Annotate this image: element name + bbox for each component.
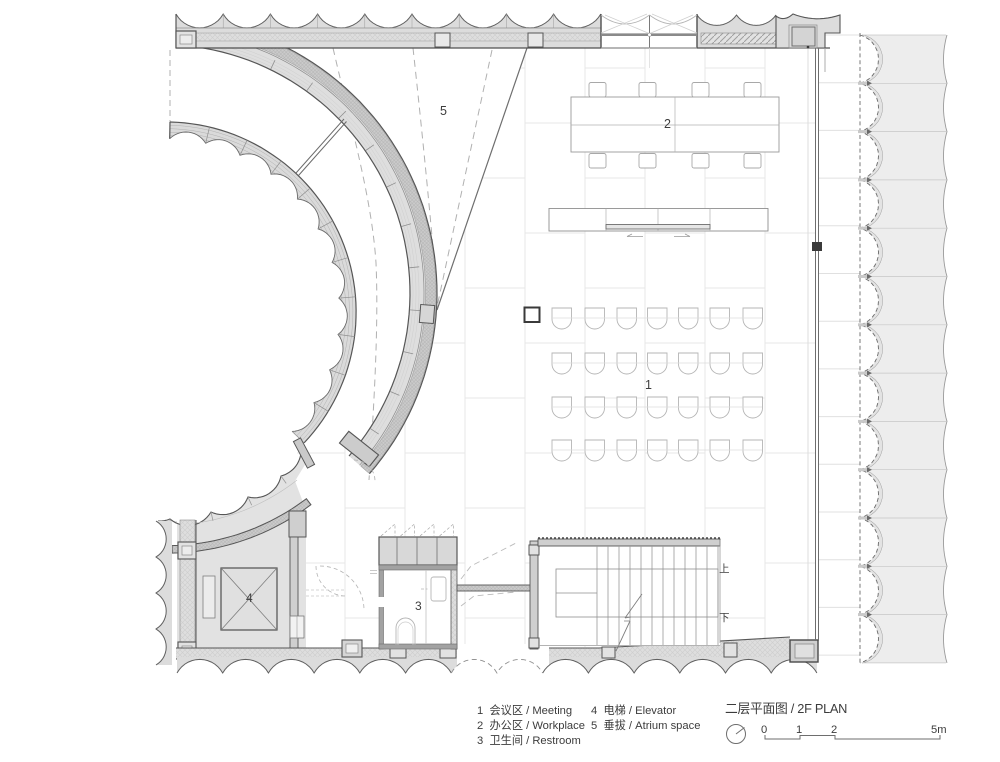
- svg-text:0: 0: [761, 724, 767, 736]
- svg-text:1 会议区 / Meeting: 1 会议区 / Meeting: [477, 704, 572, 717]
- svg-text:3: 3: [415, 599, 422, 613]
- svg-text:3 卫生间 / Restroom: 3 卫生间 / Restroom: [477, 733, 581, 747]
- svg-text:2 办公区 / Workplace: 2 办公区 / Workplace: [477, 719, 585, 732]
- svg-text:5: 5: [440, 104, 447, 118]
- svg-text:1: 1: [645, 378, 652, 392]
- svg-text:5 垂拔 / Atrium space: 5 垂拔 / Atrium space: [591, 718, 700, 732]
- svg-text:二层平面图 / 2F PLAN: 二层平面图 / 2F PLAN: [725, 701, 847, 716]
- svg-text:5m: 5m: [931, 724, 947, 736]
- svg-text:下: 下: [719, 612, 730, 624]
- svg-text:2: 2: [831, 724, 837, 736]
- svg-text:2: 2: [664, 117, 671, 131]
- svg-text:4 电梯 / Elevator: 4 电梯 / Elevator: [591, 704, 676, 717]
- svg-text:上: 上: [719, 563, 730, 575]
- svg-text:4: 4: [246, 591, 253, 605]
- svg-text:1: 1: [796, 724, 802, 736]
